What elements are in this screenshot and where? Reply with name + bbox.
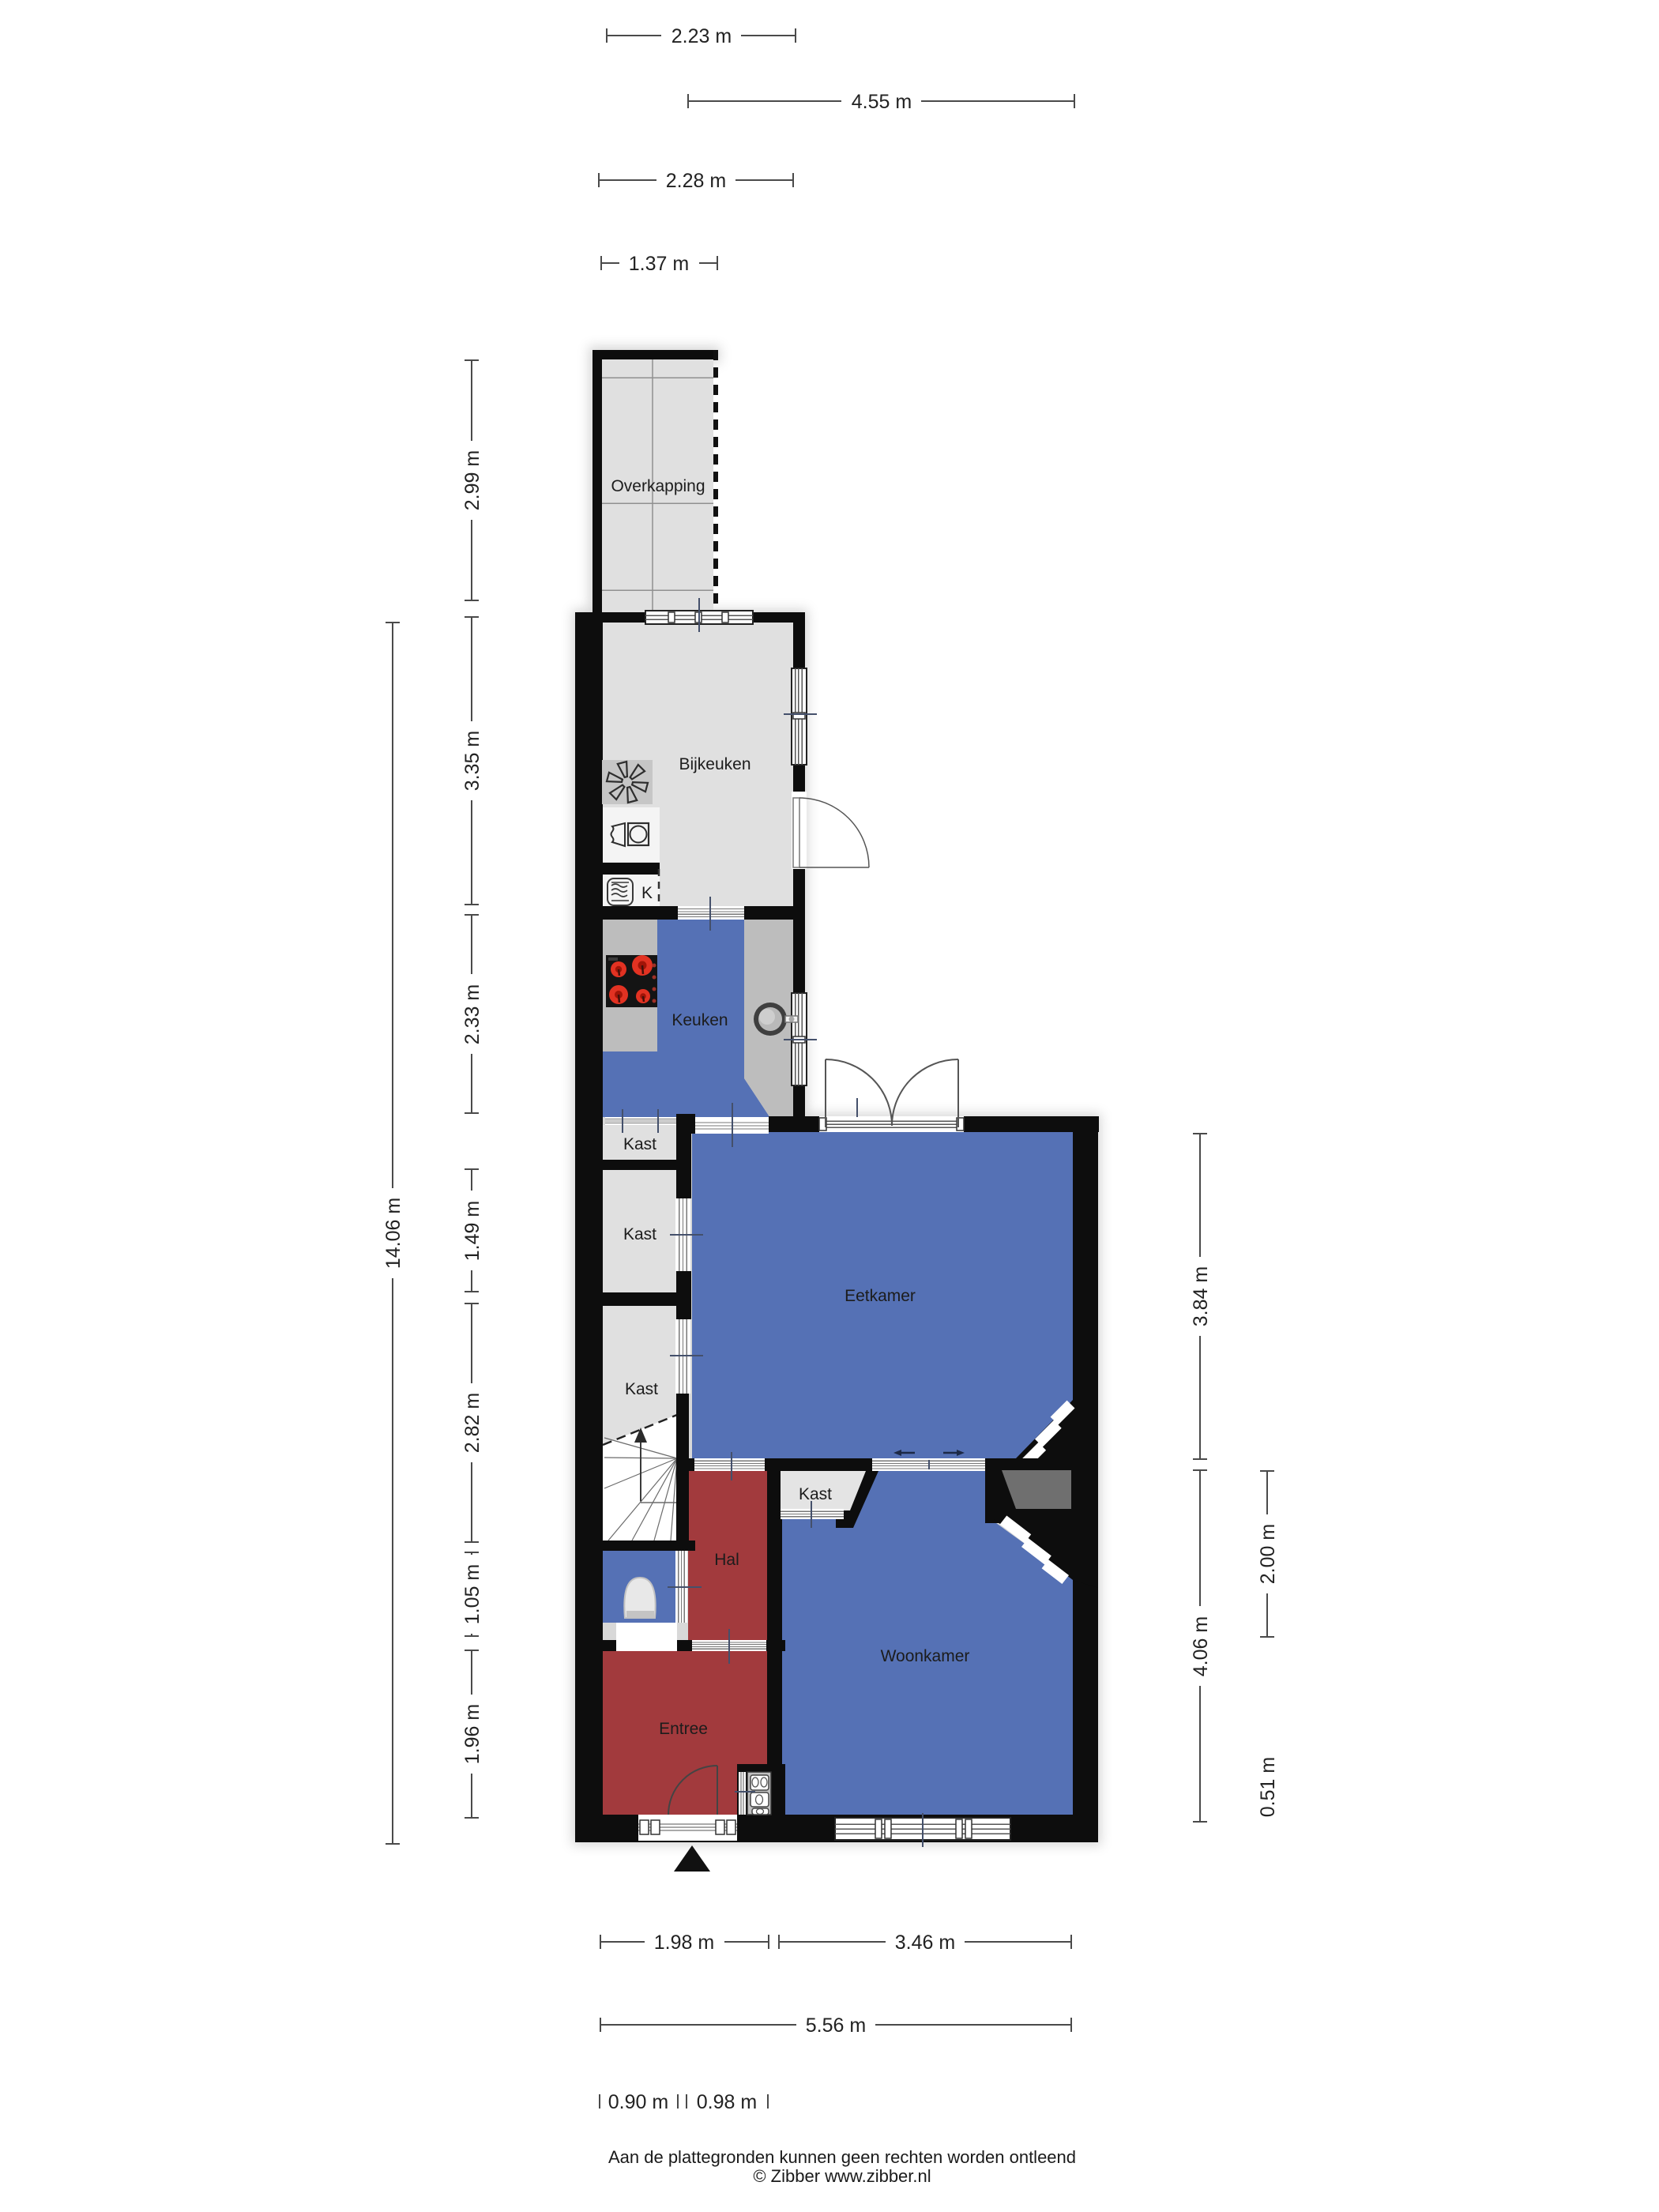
svg-text:4.55 m: 4.55 m: [852, 91, 912, 113]
svg-text:Keuken: Keuken: [671, 1011, 728, 1029]
svg-text:Kast: Kast: [623, 1135, 656, 1153]
svg-text:Kast: Kast: [799, 1485, 832, 1503]
svg-text:Woonkamer: Woonkamer: [881, 1647, 970, 1665]
svg-text:14.06 m: 14.06 m: [382, 1198, 404, 1269]
svg-text:2.00 m: 2.00 m: [1257, 1524, 1279, 1584]
svg-text:Overkapping: Overkapping: [611, 477, 705, 495]
svg-text:Kast: Kast: [625, 1380, 658, 1398]
svg-text:2.82 m: 2.82 m: [461, 1393, 483, 1453]
svg-text:3.84 m: 3.84 m: [1190, 1266, 1212, 1326]
svg-text:K: K: [641, 884, 653, 902]
svg-text:0.98 m: 0.98 m: [697, 2091, 757, 2113]
svg-text:1.37 m: 1.37 m: [629, 253, 689, 275]
svg-text:Entree: Entree: [659, 1720, 708, 1738]
svg-text:0.90 m: 0.90 m: [608, 2091, 668, 2113]
svg-text:0.51 m: 0.51 m: [1257, 1757, 1279, 1817]
svg-text:Aan de plattegronden kunnen ge: Aan de plattegronden kunnen geen rechten…: [608, 2147, 1076, 2167]
svg-text:2.28 m: 2.28 m: [666, 170, 726, 192]
svg-text:1.98 m: 1.98 m: [654, 1932, 714, 1954]
svg-text:5.56 m: 5.56 m: [806, 2014, 866, 2037]
svg-text:© Zibber www.zibber.nl: © Zibber www.zibber.nl: [753, 2166, 931, 2186]
svg-text:Kast: Kast: [623, 1225, 656, 1243]
svg-text:2.33 m: 2.33 m: [461, 984, 483, 1044]
svg-text:2.99 m: 2.99 m: [461, 450, 483, 510]
svg-text:Hal: Hal: [714, 1551, 739, 1569]
svg-text:4.06 m: 4.06 m: [1190, 1616, 1212, 1676]
svg-text:3.46 m: 3.46 m: [895, 1932, 955, 1954]
svg-text:1.05 m: 1.05 m: [461, 1564, 483, 1624]
svg-text:1.96 m: 1.96 m: [461, 1704, 483, 1764]
svg-text:2.23 m: 2.23 m: [671, 25, 732, 47]
svg-text:3.35 m: 3.35 m: [461, 731, 483, 791]
svg-text:Bijkeuken: Bijkeuken: [679, 755, 750, 773]
svg-text:1.49 m: 1.49 m: [461, 1201, 483, 1261]
svg-text:Eetkamer: Eetkamer: [845, 1287, 916, 1305]
